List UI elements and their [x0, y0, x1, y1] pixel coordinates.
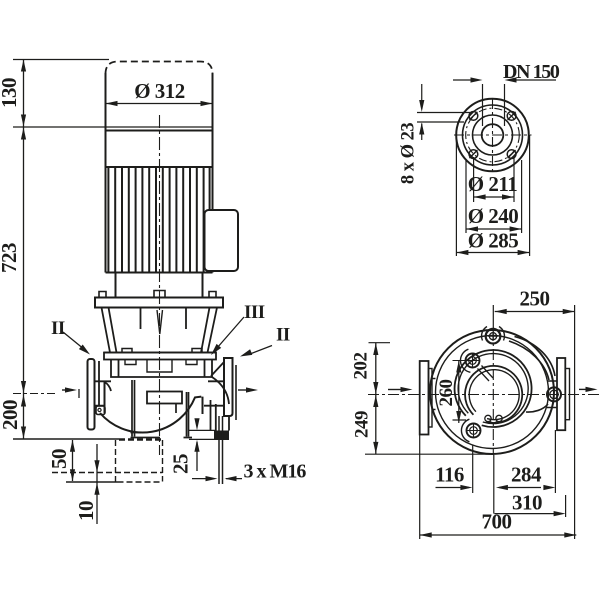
- svg-text:700: 700: [482, 510, 512, 534]
- svg-text:284: 284: [511, 463, 542, 487]
- svg-text:10: 10: [74, 501, 98, 521]
- svg-text:Ø 312: Ø 312: [134, 79, 185, 103]
- svg-text:50: 50: [47, 449, 71, 469]
- svg-text:116: 116: [435, 463, 464, 487]
- svg-text:130: 130: [0, 78, 21, 108]
- svg-text:8 x Ø 23: 8 x Ø 23: [399, 123, 419, 185]
- svg-text:III: III: [244, 302, 265, 323]
- svg-text:Ø 285: Ø 285: [468, 229, 519, 253]
- svg-text:II: II: [51, 318, 65, 339]
- svg-text:Ø 240: Ø 240: [468, 204, 519, 228]
- svg-text:202: 202: [351, 353, 372, 380]
- svg-text:200: 200: [0, 400, 22, 430]
- svg-text:25: 25: [169, 454, 193, 474]
- svg-text:Ø 211: Ø 211: [468, 172, 517, 196]
- svg-text:II: II: [276, 325, 290, 346]
- svg-text:260: 260: [436, 380, 457, 407]
- svg-text:310: 310: [512, 491, 542, 515]
- svg-text:3 x M16: 3 x M16: [244, 461, 307, 483]
- svg-text:250: 250: [520, 287, 550, 311]
- svg-text:249: 249: [352, 411, 373, 438]
- svg-text:723: 723: [0, 243, 21, 273]
- svg-text:DN 150: DN 150: [503, 61, 560, 83]
